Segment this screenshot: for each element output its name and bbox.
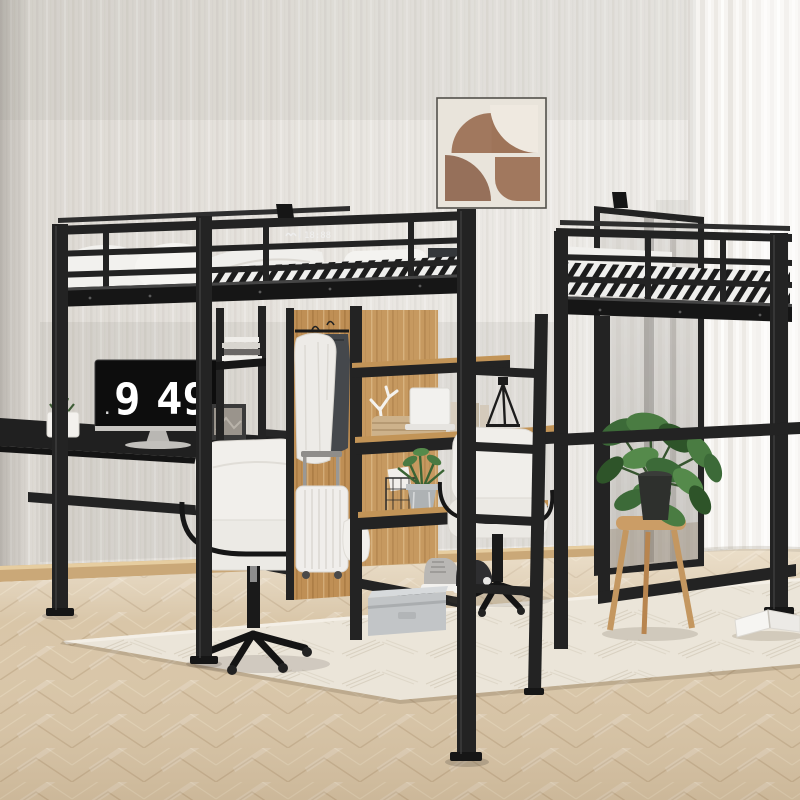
clock-dot: . [103, 402, 111, 418]
rail-clamp-tab-right [612, 192, 628, 208]
room-product-photo: . 9 49 [0, 0, 800, 800]
rail-display-text: 18:88 [304, 231, 331, 241]
laptop [405, 388, 455, 430]
rail-clamp-tab [276, 204, 294, 218]
abstract-wall-art [437, 98, 546, 208]
photo-frame [210, 404, 246, 440]
wall-corner-shadow [0, 0, 30, 576]
clock-hour: 9 [114, 374, 141, 425]
storage-box [368, 586, 448, 636]
wardrobe-divider [350, 306, 362, 640]
plant-pot [638, 476, 672, 520]
hanging-jacket-white [295, 327, 336, 464]
